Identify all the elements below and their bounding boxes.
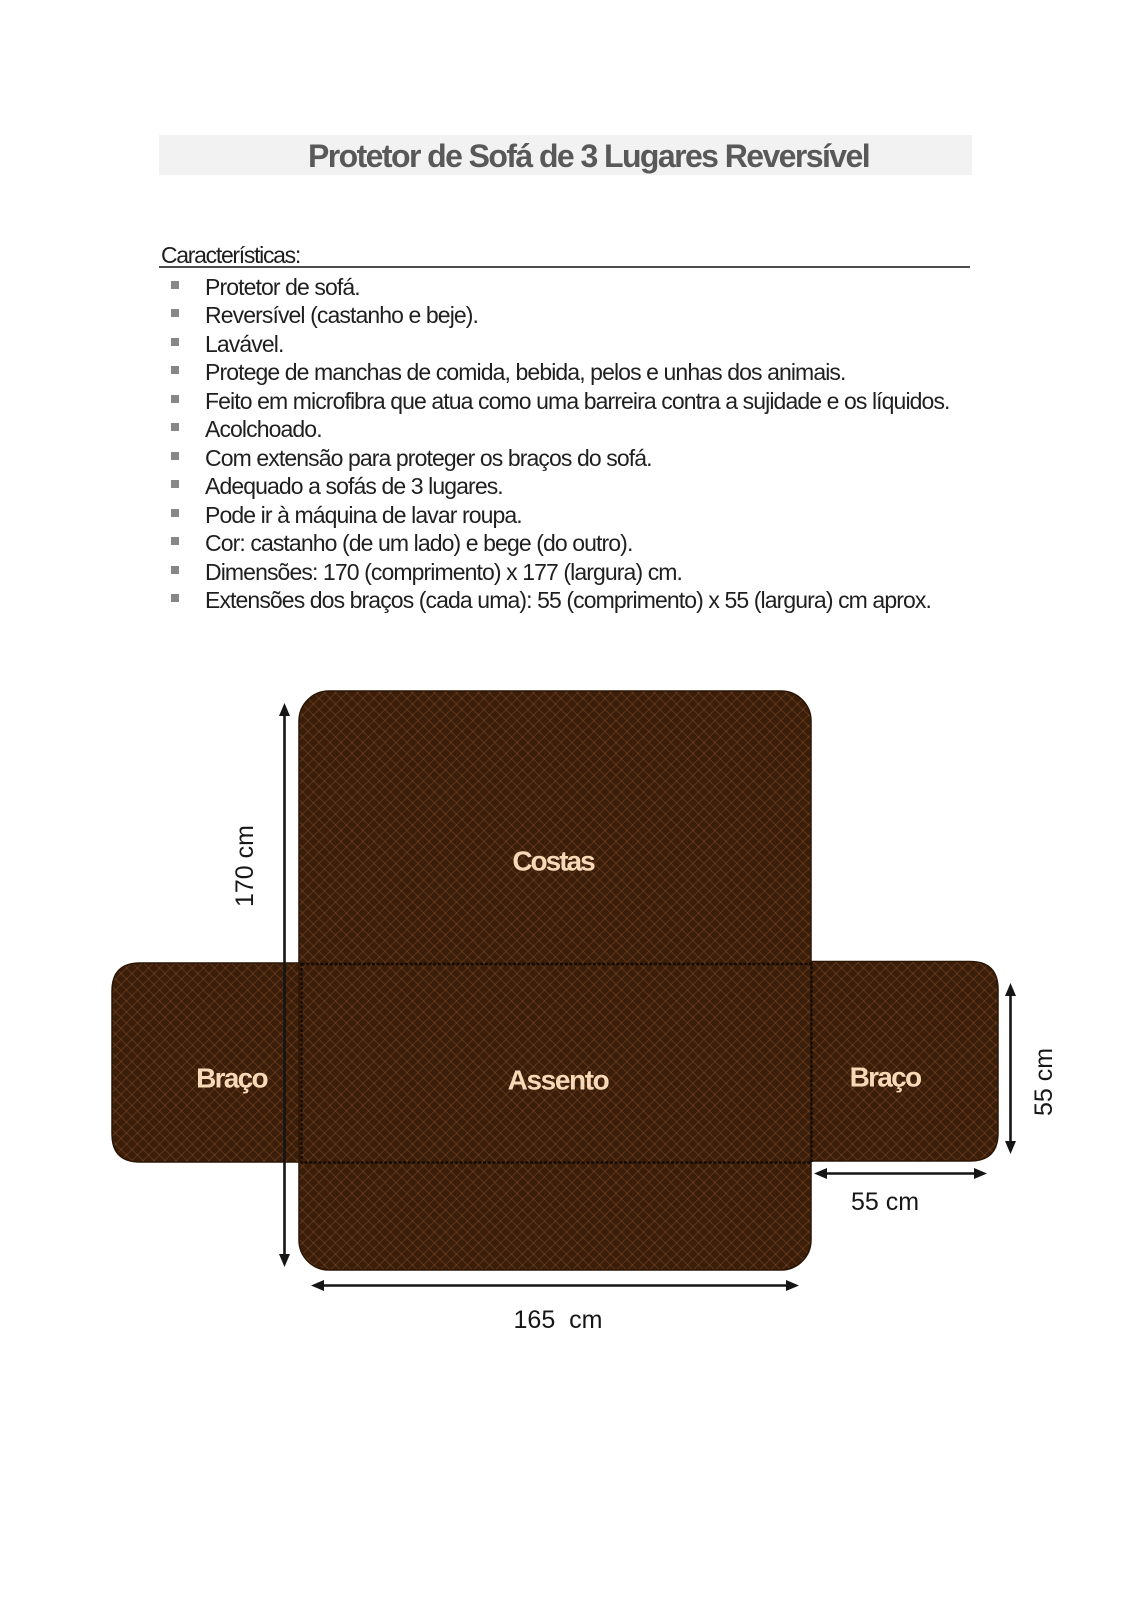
svg-text:Assento: Assento bbox=[508, 1065, 610, 1096]
svg-text:55 cm: 55 cm bbox=[1030, 1048, 1058, 1116]
svg-text:55 cm: 55 cm bbox=[851, 1188, 919, 1216]
svg-text:165 cm: 165 cm bbox=[514, 1306, 603, 1334]
svg-text:Braço: Braço bbox=[850, 1062, 922, 1093]
svg-text:Costas: Costas bbox=[512, 846, 595, 877]
svg-text:Braço: Braço bbox=[196, 1063, 268, 1094]
svg-text:170 cm: 170 cm bbox=[231, 825, 259, 907]
